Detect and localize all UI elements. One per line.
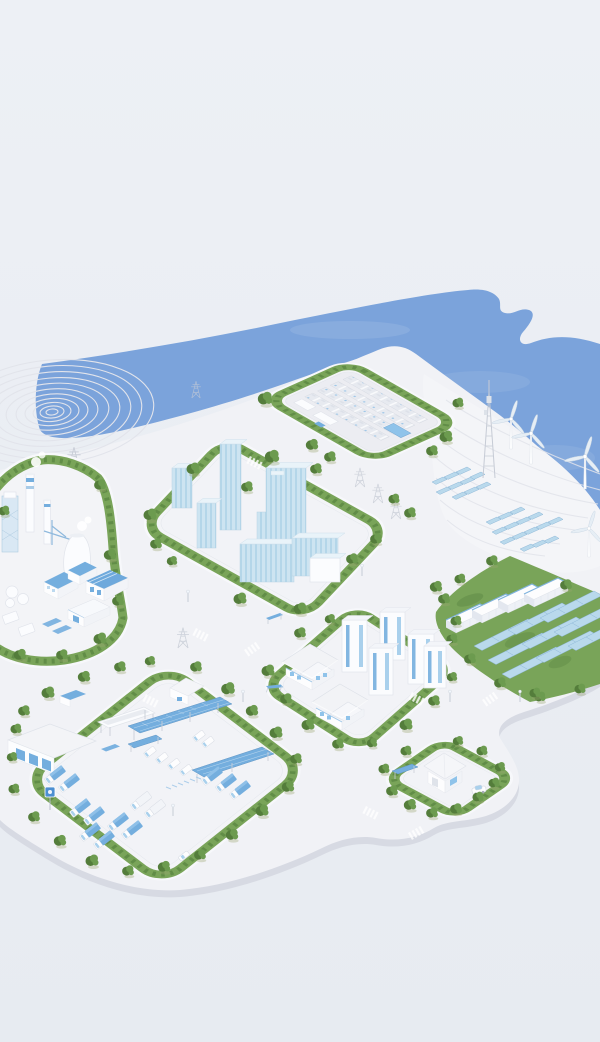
industrial-plant-block [0,452,128,663]
lattice-tower-cap [4,492,16,498]
antenna-dish [484,410,488,415]
storage-tank [18,594,29,605]
steam-puff [77,521,87,531]
lattice-tower [2,496,18,552]
antenna-panel [487,396,492,403]
tree [0,506,10,518]
steam-puff [39,452,46,459]
storage-tank [6,599,15,608]
water-highlight [290,321,410,339]
hut-sign [177,697,182,701]
steam-puff [31,457,41,467]
scene-canvas [0,0,600,1042]
scene-stage [0,0,600,1042]
chimney [44,499,51,544]
steam-puff [85,517,92,524]
storage-tank [6,586,18,598]
